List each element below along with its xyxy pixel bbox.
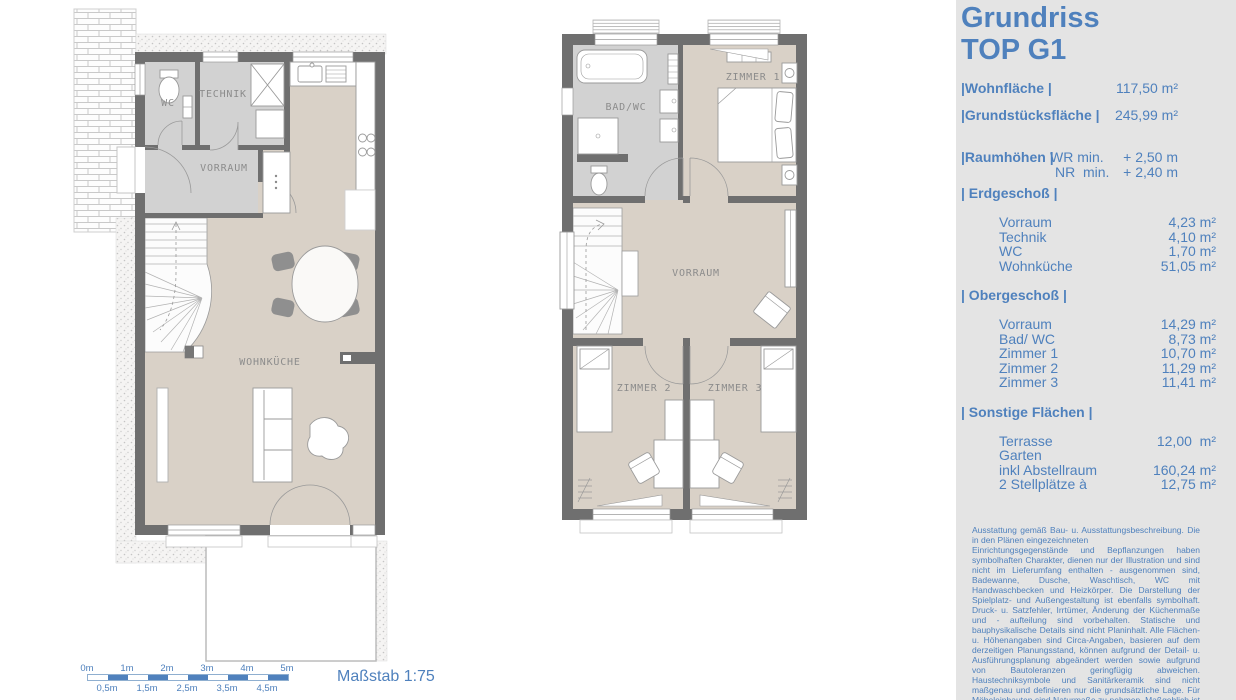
raumhoehen-row-2: NR min. + 2,40 m	[961, 165, 1178, 180]
table-row: Zimmer 2 11,29 m²	[961, 361, 1216, 376]
shower	[578, 118, 618, 154]
raumhoehen-value-wr: + 2,50 m	[1123, 150, 1178, 165]
table-row: WC 1,70 m²	[961, 244, 1216, 259]
room-label: Terrasse	[999, 434, 1053, 449]
room-area: 11,29 m²	[1162, 361, 1216, 376]
dining-table	[292, 246, 358, 322]
room-label: inkl Abstellraum	[999, 463, 1097, 478]
shower-halfwall	[577, 154, 628, 162]
grundstuecksflaeche-row: |Grundstücksfläche | 245,99 m²	[961, 108, 1178, 123]
label-zimmer3: ZIMMER 3	[708, 383, 763, 394]
sofa	[253, 388, 292, 482]
room-area: 1,70 m²	[1169, 244, 1216, 259]
scale-label: 1,5m	[136, 683, 157, 694]
room-label: Vorraum	[999, 215, 1052, 230]
room-label: Garten	[999, 448, 1042, 463]
room-label: Zimmer 2	[999, 361, 1058, 376]
label-vorraum-og: VORRAUM	[672, 268, 720, 279]
scale-label: 3,5m	[216, 683, 237, 694]
table-row: Zimmer 3 11,41 m²	[961, 375, 1216, 390]
room-area: 51,05 m²	[1161, 259, 1216, 274]
scale-label: 4,5m	[256, 683, 277, 694]
wohnflaeche-row: |Wohnfläche | 117,50 m²	[961, 81, 1178, 96]
scale-label: 3m	[200, 663, 213, 674]
scale-label: 4m	[240, 663, 253, 674]
disclaimer-text: Ausstattung gemäß Bau- u. Ausstattungsbe…	[972, 525, 1200, 700]
scale-bar-track	[87, 674, 289, 681]
room-area: 10,70 m²	[1161, 346, 1216, 361]
obergeschoss-header: | Obergeschoß |	[961, 288, 1178, 303]
kitchen-sink	[298, 66, 322, 82]
bathtub	[577, 50, 647, 83]
bed-zimmer2	[577, 346, 612, 432]
scale-label: 0m	[80, 663, 93, 674]
scale-label: 2,5m	[176, 683, 197, 694]
technik-unit	[251, 64, 284, 138]
terrace-door-opening	[270, 525, 350, 535]
scale-bar: 0m 1m 2m 3m 4m 5m 0,5m 1,5m 2,5m 3,5m 4,…	[78, 663, 318, 697]
title-line-2: TOP G1	[961, 34, 1236, 66]
sonstige-header: | Sonstige Flächen |	[961, 405, 1178, 420]
scale-label: 5m	[280, 663, 293, 674]
room-label: Zimmer 1	[999, 346, 1058, 361]
chimney-slit	[343, 355, 351, 361]
scale-label: 0,5m	[96, 683, 117, 694]
room-label: Bad/ WC	[999, 332, 1055, 347]
room-area: 4,10 m²	[1169, 230, 1216, 245]
room-area: 160,24 m²	[1153, 463, 1216, 478]
label-zimmer2: ZIMMER 2	[617, 383, 672, 394]
erdgeschoss-header-text: | Erdgeschoß |	[961, 186, 1058, 201]
table-row: Garten	[961, 448, 1216, 463]
page-title: Grundriss TOP G1	[961, 2, 1236, 66]
paved-parking-area	[74, 9, 136, 232]
label-zimmer1: ZIMMER 1	[726, 72, 781, 83]
shutter-box-right	[708, 20, 780, 34]
gravel-strip-left	[116, 218, 136, 563]
raumhoehen-key-wr: WR min.	[1050, 150, 1104, 165]
room-label: Wohnküche	[999, 259, 1073, 274]
grundstuecksflaeche-label: |Grundstücksfläche |	[961, 108, 1100, 123]
raumhoehen-row-1: |Raumhöhen | WR min. + 2,50 m	[961, 150, 1178, 165]
room-area: 4,23 m²	[1169, 215, 1216, 230]
label-wohnkueche: WOHNKÜCHE	[239, 355, 300, 368]
sonstige-header-text: | Sonstige Flächen |	[961, 405, 1093, 420]
floorplan-sheet: WC TECHNIK VORRAUM WOHNKÜCHE	[0, 0, 1236, 700]
wohnflaeche-value: 117,50 m²	[1116, 81, 1178, 96]
table-row: Zimmer 1 10,70 m²	[961, 346, 1216, 361]
entrance-recess	[117, 147, 135, 193]
wohnflaeche-label: |Wohnfläche |	[961, 81, 1052, 96]
room-label: Zimmer 3	[999, 375, 1058, 390]
stair-base-box-dark	[185, 346, 194, 358]
grundstuecksflaeche-value: 245,99 m²	[1115, 108, 1178, 123]
room-label: 2 Stellplätze à	[999, 477, 1087, 492]
table-row: Wohnküche 51,05 m²	[961, 259, 1216, 274]
table-row: inkl Abstellraum 160,24 m²	[961, 463, 1216, 478]
room-area: 12,00 m²	[1157, 434, 1216, 449]
room-area: 12,75 m²	[1161, 477, 1216, 492]
room-label: Technik	[999, 230, 1046, 245]
label-bad-wc: BAD/WC	[606, 102, 647, 113]
table-row: Terrasse 12,00 m²	[961, 434, 1216, 449]
floor-plan-obergeschoss: BAD/WC ZIMMER 1 VORRAUM ZIMMER 2 ZIMMER …	[540, 0, 840, 560]
table-row: Vorraum 4,23 m²	[961, 215, 1216, 230]
scale-label: 2m	[160, 663, 173, 674]
entrance-door-opening	[135, 147, 145, 193]
room-area: 11,41 m²	[1162, 375, 1216, 390]
table-row: Vorraum 14,29 m²	[961, 317, 1216, 332]
label-vorraum-eg: VORRAUM	[200, 163, 248, 174]
stair-landing	[622, 251, 638, 296]
room-area: 8,73 m²	[1169, 332, 1216, 347]
title-line-1: Grundriss	[961, 2, 1236, 34]
gravel-strip-right	[375, 541, 387, 661]
room-label: Vorraum	[999, 317, 1052, 332]
raumhoehen-key-nr: NR min.	[1055, 165, 1109, 180]
table-row: Bad/ WC 8,73 m²	[961, 332, 1216, 347]
erdgeschoss-header: | Erdgeschoß |	[961, 186, 1178, 201]
bath-shelf	[668, 54, 678, 84]
room-area: 14,29 m²	[1161, 317, 1216, 332]
info-panel: Grundriss TOP G1 |Wohnfläche | 117,50 m²…	[956, 0, 1236, 700]
vorraum-floor	[145, 150, 258, 213]
label-technik: TECHNIK	[199, 89, 247, 100]
floor-plan-erdgeschoss: WC TECHNIK VORRAUM WOHNKÜCHE	[60, 0, 460, 665]
bed-zimmer3	[761, 346, 796, 432]
obergeschoss-header-text: | Obergeschoß |	[961, 288, 1067, 303]
table-row: 2 Stellplätze à 12,75 m²	[961, 477, 1216, 492]
terrace	[206, 535, 376, 661]
raumhoehen-label: |Raumhöhen |	[961, 150, 1050, 165]
label-wc: WC	[161, 98, 175, 109]
scale-caption: Maßstab 1:75	[337, 668, 435, 686]
shutter-box-left	[593, 20, 659, 34]
scale-label: 1m	[120, 663, 133, 674]
room-label: WC	[999, 244, 1022, 259]
site-upper	[593, 20, 780, 34]
raumhoehen-value-nr: + 2,40 m	[1123, 165, 1178, 180]
sideboard	[157, 388, 168, 482]
gravel-strip-top	[136, 34, 386, 54]
table-row: Technik 4,10 m²	[961, 230, 1216, 245]
toilet-og	[591, 166, 607, 195]
